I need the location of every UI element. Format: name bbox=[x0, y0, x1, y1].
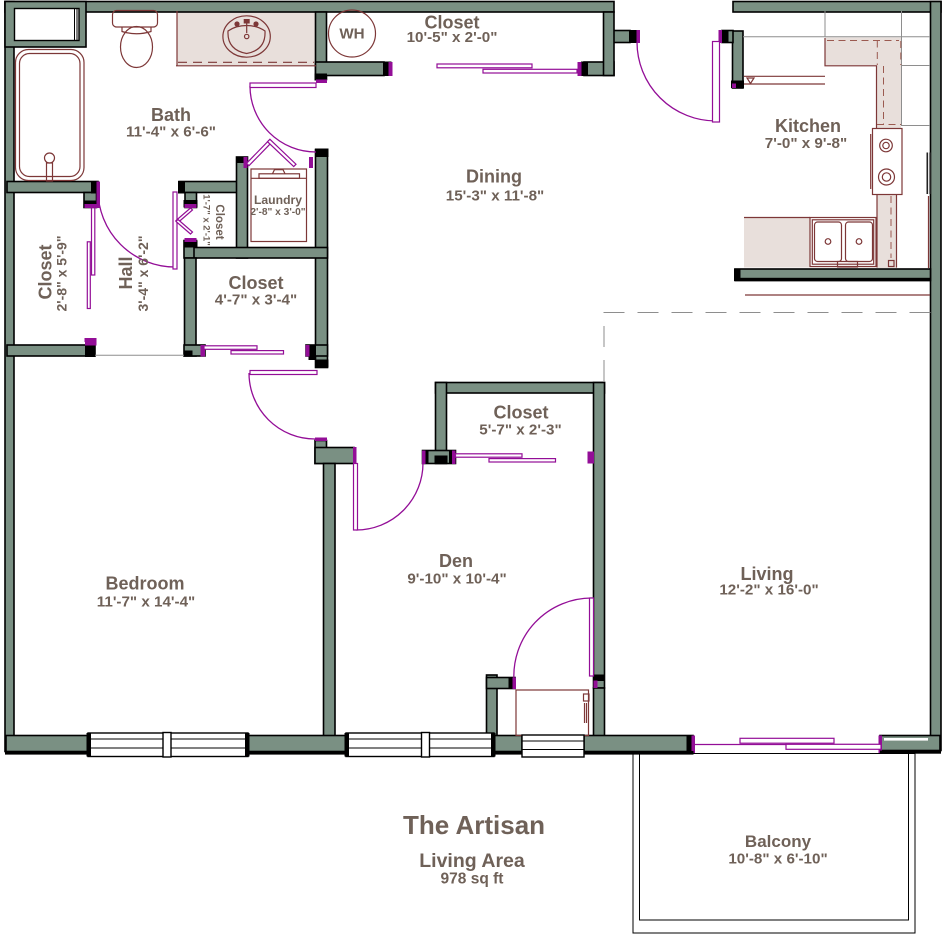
svg-text:WH: WH bbox=[339, 26, 364, 43]
svg-text:11'-4" x 6'-6": 11'-4" x 6'-6" bbox=[126, 124, 216, 141]
svg-text:11'-7" x 14'-4": 11'-7" x 14'-4" bbox=[97, 594, 195, 611]
svg-text:The Artisan: The Artisan bbox=[403, 810, 545, 840]
svg-text:Closet: Closet bbox=[35, 244, 55, 299]
svg-text:Dining: Dining bbox=[466, 167, 522, 187]
svg-text:Closet: Closet bbox=[228, 273, 283, 293]
svg-text:2'-8" x 5'-9": 2'-8" x 5'-9" bbox=[54, 236, 70, 312]
svg-text:2'-8" x 3'-0": 2'-8" x 3'-0" bbox=[250, 207, 305, 218]
svg-text:Balcony: Balcony bbox=[745, 832, 812, 851]
svg-text:7'-0" x 9'-8": 7'-0" x 9'-8" bbox=[765, 135, 847, 152]
svg-text:4'-7" x 3'-4": 4'-7" x 3'-4" bbox=[215, 292, 297, 309]
svg-text:Bedroom: Bedroom bbox=[105, 574, 184, 594]
svg-text:12'-2" x 16'-0": 12'-2" x 16'-0" bbox=[719, 582, 818, 599]
svg-text:Bath: Bath bbox=[151, 105, 191, 125]
svg-text:Hall: Hall bbox=[116, 256, 136, 289]
svg-text:Closet: Closet bbox=[213, 204, 225, 239]
svg-text:1'-7" x 2'-1": 1'-7" x 2'-1" bbox=[201, 194, 212, 246]
svg-text:Living Area: Living Area bbox=[419, 850, 525, 872]
svg-text:5'-7" x 2'-3": 5'-7" x 2'-3" bbox=[479, 422, 561, 439]
svg-text:10'-8" x 6'-10": 10'-8" x 6'-10" bbox=[728, 851, 827, 868]
svg-text:Laundry: Laundry bbox=[254, 193, 302, 207]
svg-text:Closet: Closet bbox=[493, 403, 548, 423]
svg-text:Den: Den bbox=[439, 551, 473, 571]
svg-text:10'-5" x 2'-0": 10'-5" x 2'-0" bbox=[407, 29, 498, 46]
svg-text:978 sq ft: 978 sq ft bbox=[441, 871, 504, 888]
svg-text:Kitchen: Kitchen bbox=[775, 116, 841, 136]
svg-text:3'-4" x 6'-2": 3'-4" x 6'-2" bbox=[135, 236, 151, 312]
svg-text:9'-10" x 10'-4": 9'-10" x 10'-4" bbox=[407, 571, 506, 588]
svg-text:15'-3" x 11'-8": 15'-3" x 11'-8" bbox=[446, 188, 544, 205]
